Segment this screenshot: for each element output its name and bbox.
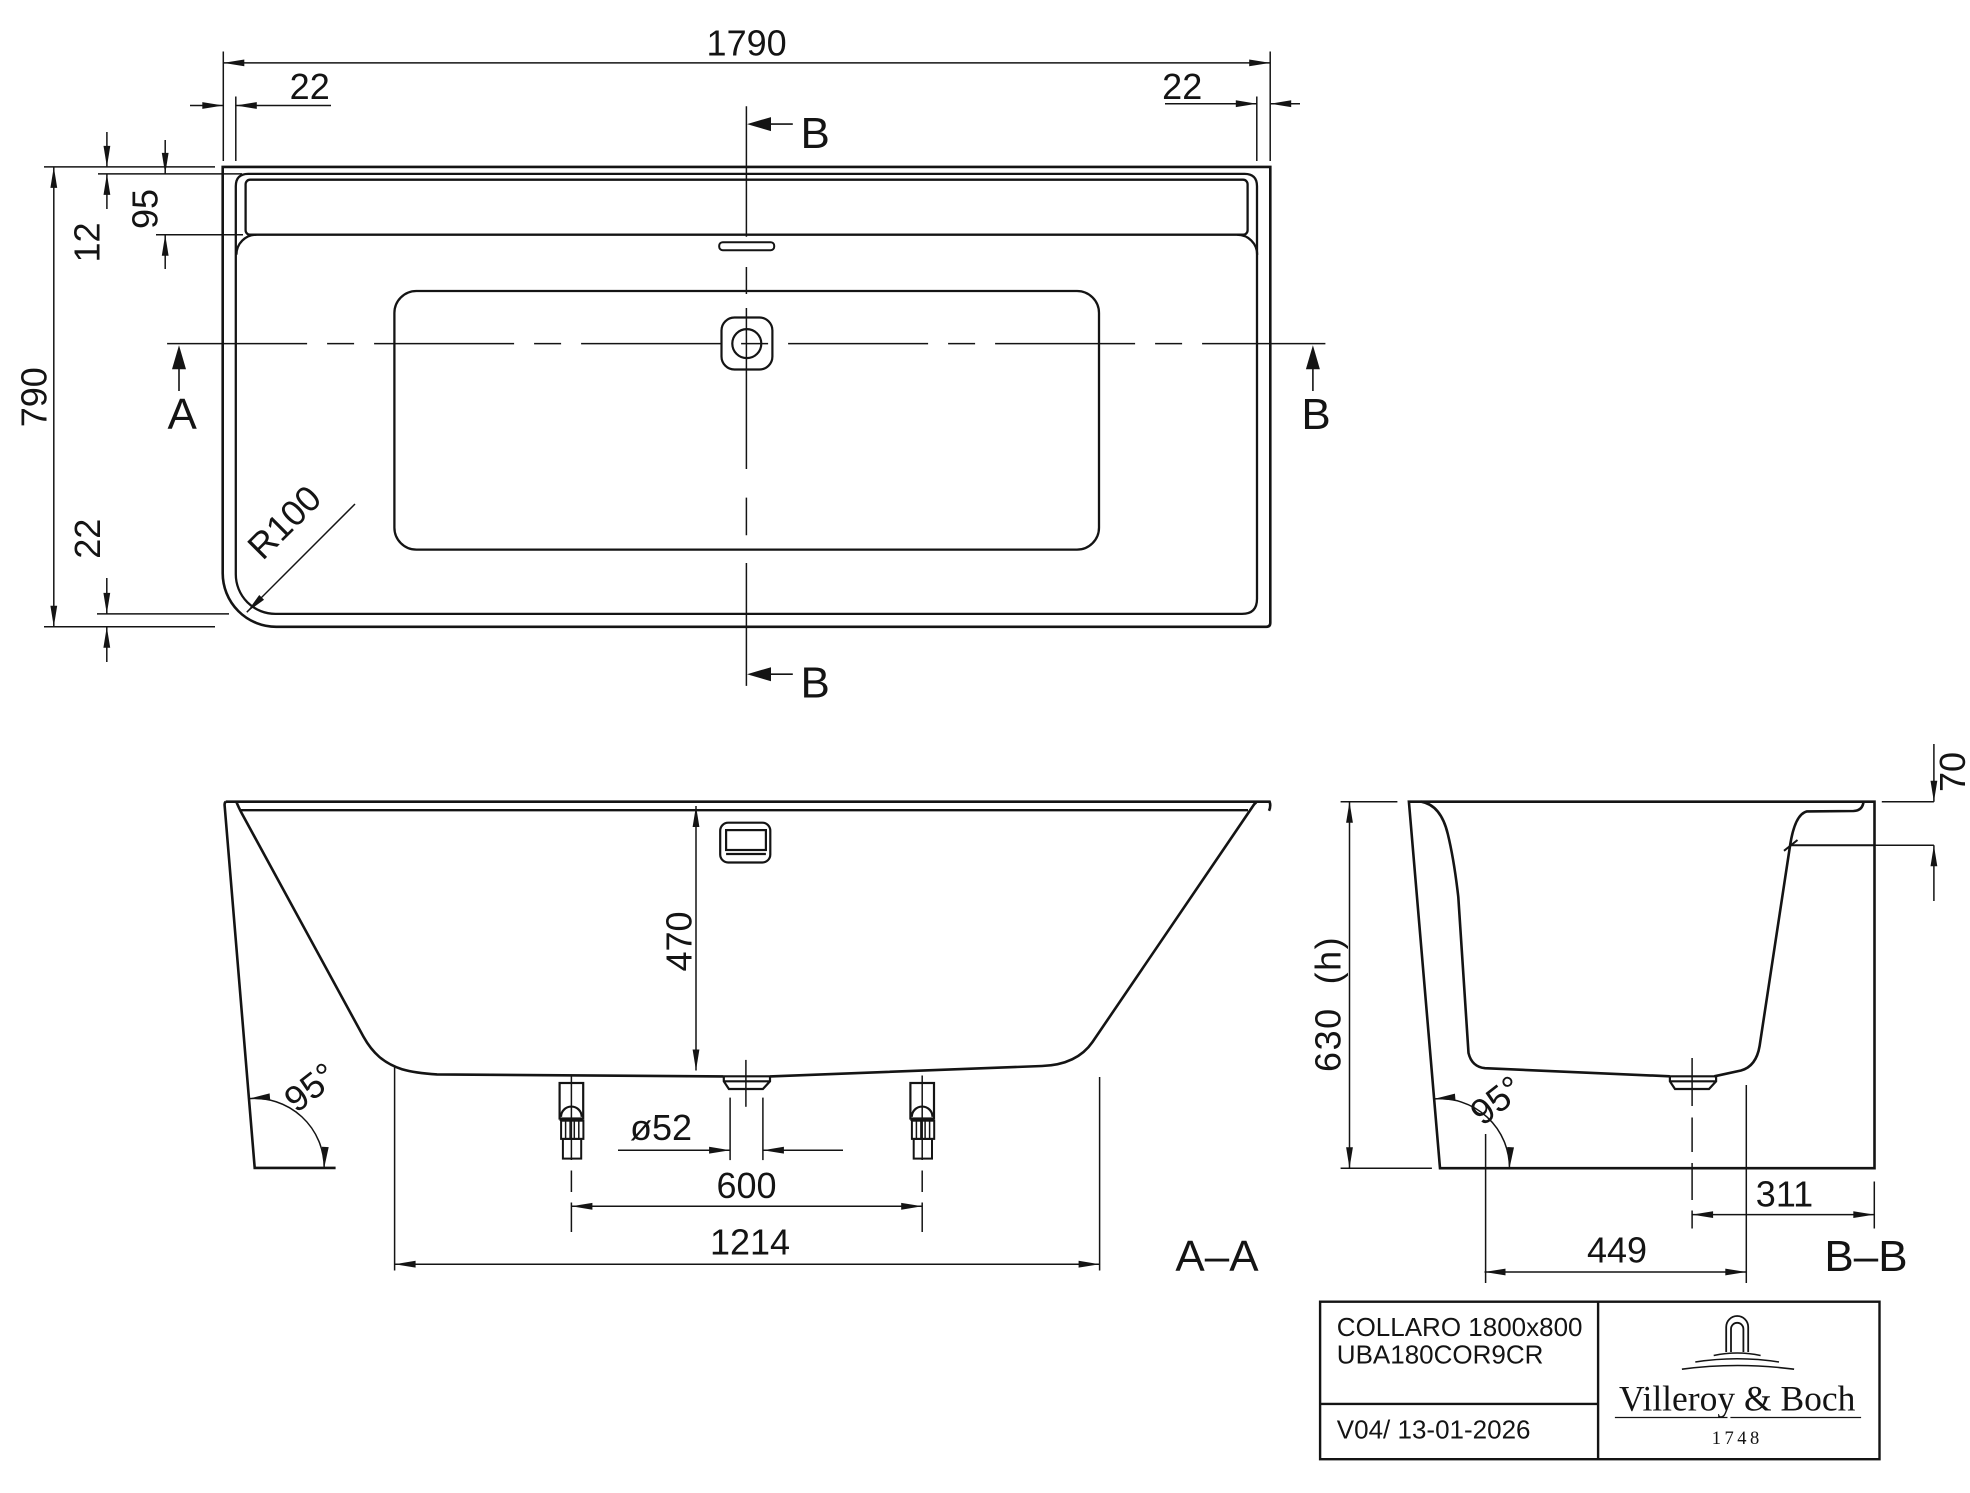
svg-text:630 (h): 630 (h) (1307, 936, 1348, 1072)
svg-text:B–B: B–B (1824, 1232, 1907, 1281)
svg-text:UBA180COR9CR: UBA180COR9CR (1337, 1340, 1544, 1370)
svg-text:22: 22 (67, 519, 108, 559)
svg-text:311: 311 (1756, 1174, 1813, 1215)
svg-text:449: 449 (1587, 1230, 1647, 1271)
svg-text:22: 22 (290, 66, 330, 107)
svg-text:V04/ 13-01-2026: V04/ 13-01-2026 (1337, 1415, 1531, 1445)
svg-text:12: 12 (67, 222, 108, 262)
svg-text:1790: 1790 (707, 23, 787, 64)
svg-text:COLLARO 1800x800: COLLARO 1800x800 (1337, 1312, 1583, 1342)
svg-text:22: 22 (1162, 66, 1202, 107)
svg-text:B: B (1301, 390, 1330, 439)
svg-text:600: 600 (716, 1165, 776, 1206)
svg-text:790: 790 (14, 367, 55, 427)
svg-text:1214: 1214 (710, 1222, 790, 1263)
svg-text:ø52: ø52 (630, 1107, 692, 1148)
svg-text:1748: 1748 (1712, 1429, 1763, 1449)
svg-text:Villeroy & Boch: Villeroy & Boch (1619, 1379, 1856, 1419)
svg-text:A: A (168, 390, 198, 439)
svg-text:95: 95 (125, 189, 166, 229)
svg-text:B: B (801, 109, 830, 158)
svg-text:B: B (801, 659, 830, 708)
svg-text:70: 70 (1932, 752, 1970, 792)
svg-text:470: 470 (659, 911, 700, 971)
svg-text:A–A: A–A (1175, 1232, 1259, 1281)
